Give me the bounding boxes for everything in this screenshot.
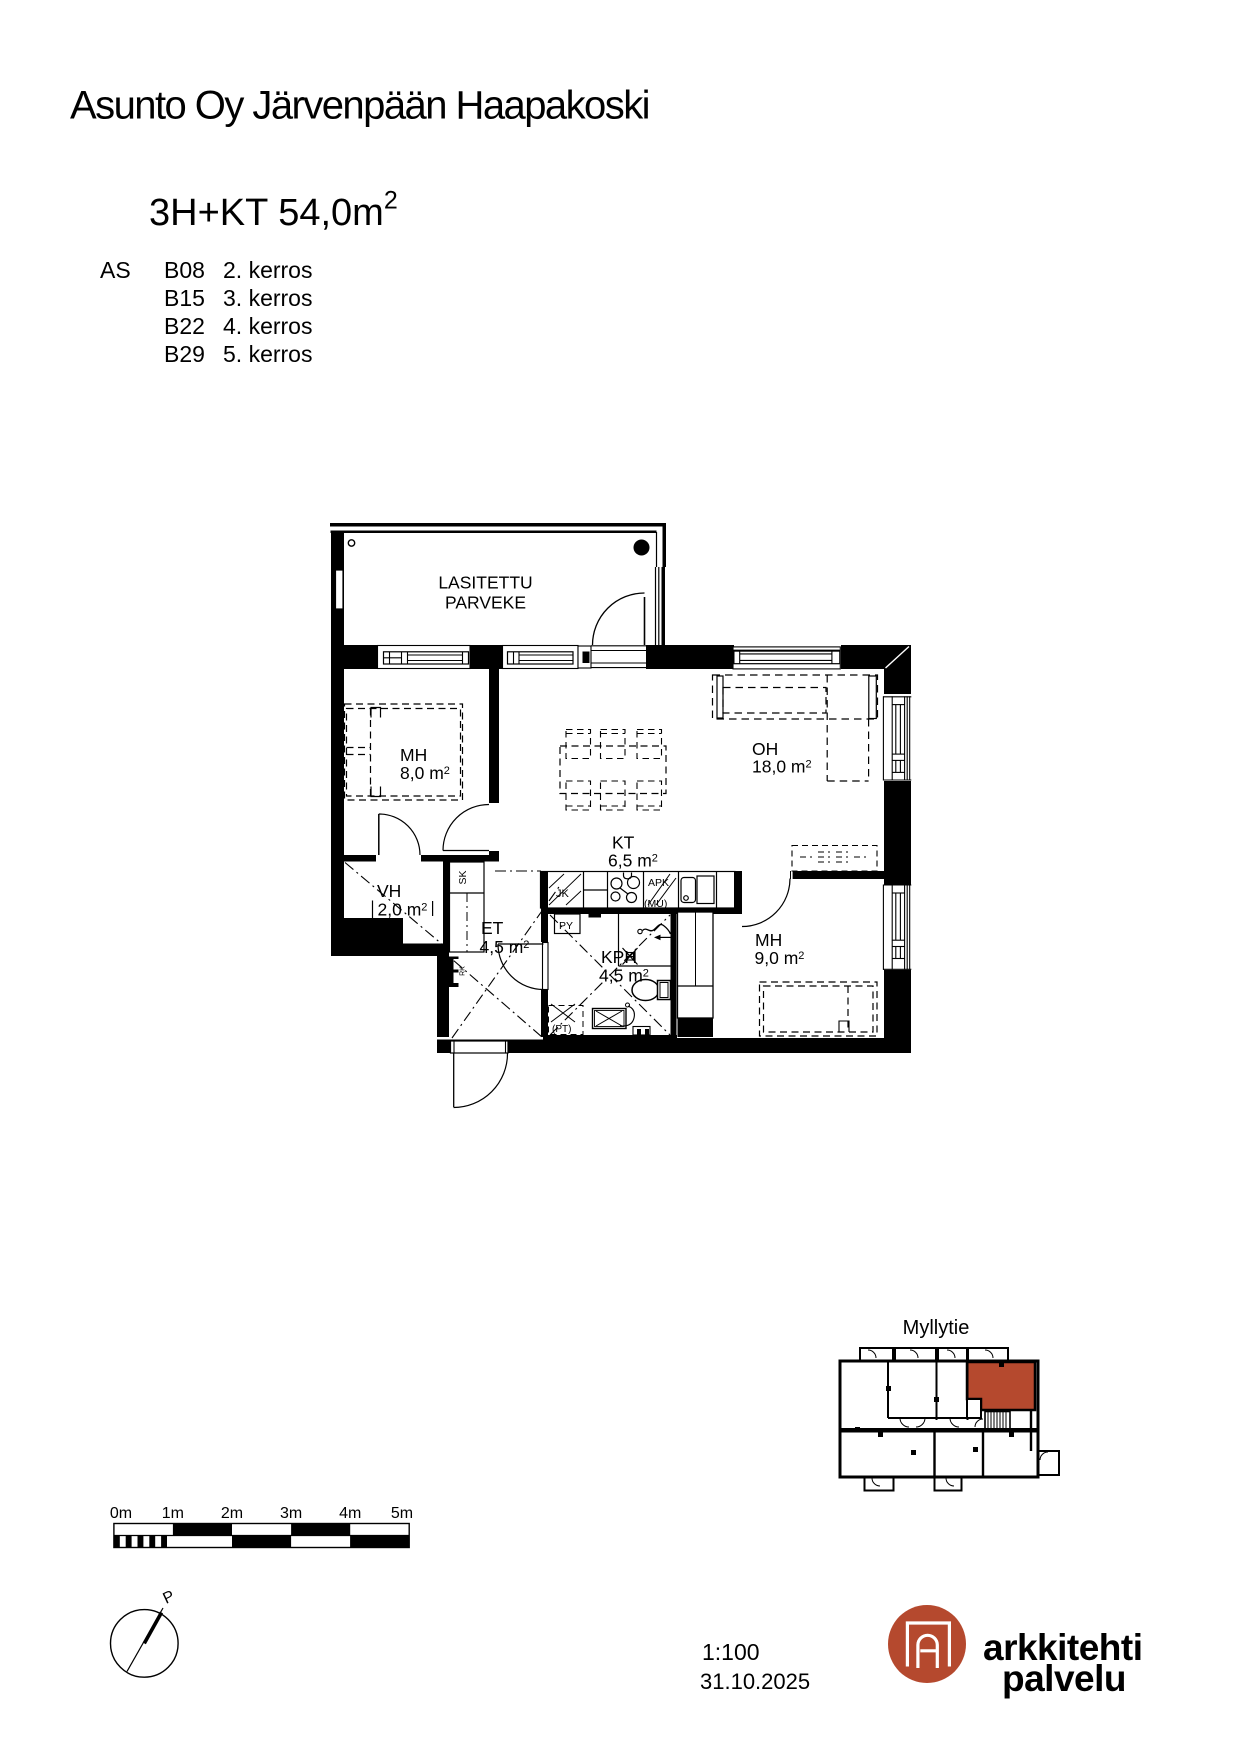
svg-text:palvelu: palvelu (1002, 1658, 1126, 1699)
svg-text:B22: B22 (164, 313, 205, 339)
svg-text:PY: PY (559, 920, 573, 932)
svg-text:4. kerros: 4. kerros (223, 313, 312, 339)
svg-text:1:100: 1:100 (702, 1639, 760, 1665)
svg-text:KT: KT (612, 833, 635, 853)
svg-text:18,0 m2: 18,0 m2 (752, 757, 812, 777)
svg-text:8,0 m2: 8,0 m2 (400, 763, 450, 783)
svg-text:Asunto Oy Järvenpään Haapakosk: Asunto Oy Järvenpään Haapakoski (70, 84, 649, 128)
svg-text:1m: 1m (162, 1505, 184, 1522)
svg-text:6,5 m2: 6,5 m2 (608, 851, 658, 871)
svg-text:B08: B08 (164, 257, 205, 283)
svg-text:3H+KT 54,0m2: 3H+KT 54,0m2 (149, 187, 398, 235)
svg-text:5m: 5m (391, 1505, 413, 1522)
svg-text:3. kerros: 3. kerros (223, 285, 312, 311)
svg-text:2. kerros: 2. kerros (223, 257, 312, 283)
svg-text:(MU): (MU) (644, 898, 667, 910)
svg-text:B15: B15 (164, 285, 205, 311)
svg-text:JK: JK (556, 888, 570, 900)
svg-text:4,5 m2: 4,5 m2 (599, 966, 649, 986)
svg-text:B29: B29 (164, 341, 205, 367)
svg-text:SK: SK (457, 870, 469, 884)
svg-text:9,0 m2: 9,0 m2 (755, 948, 805, 968)
svg-text:APK: APK (648, 877, 669, 889)
svg-text:Myllytie: Myllytie (903, 1317, 970, 1339)
svg-text:2,0 m2: 2,0 m2 (378, 900, 428, 920)
svg-text:5. kerros: 5. kerros (223, 341, 312, 367)
svg-text:2m: 2m (221, 1505, 243, 1522)
svg-text:MH: MH (755, 930, 782, 950)
svg-text:LASITETTU: LASITETTU (438, 573, 532, 593)
svg-text:31.10.2025: 31.10.2025 (700, 1669, 810, 1694)
svg-text:3m: 3m (280, 1505, 302, 1522)
svg-text:ET: ET (481, 918, 504, 938)
svg-text:AS: AS (100, 257, 131, 283)
svg-text:4m: 4m (339, 1505, 361, 1522)
svg-text:0m: 0m (110, 1505, 132, 1522)
svg-text:4,5 m2: 4,5 m2 (480, 937, 530, 957)
svg-text:VH: VH (377, 881, 401, 901)
svg-text:PARVEKE: PARVEKE (445, 593, 526, 613)
svg-text:MH: MH (400, 745, 427, 765)
svg-text:KPH: KPH (601, 947, 637, 967)
svg-text:(PT): (PT) (552, 1024, 571, 1035)
svg-text:P: P (161, 1588, 178, 1608)
